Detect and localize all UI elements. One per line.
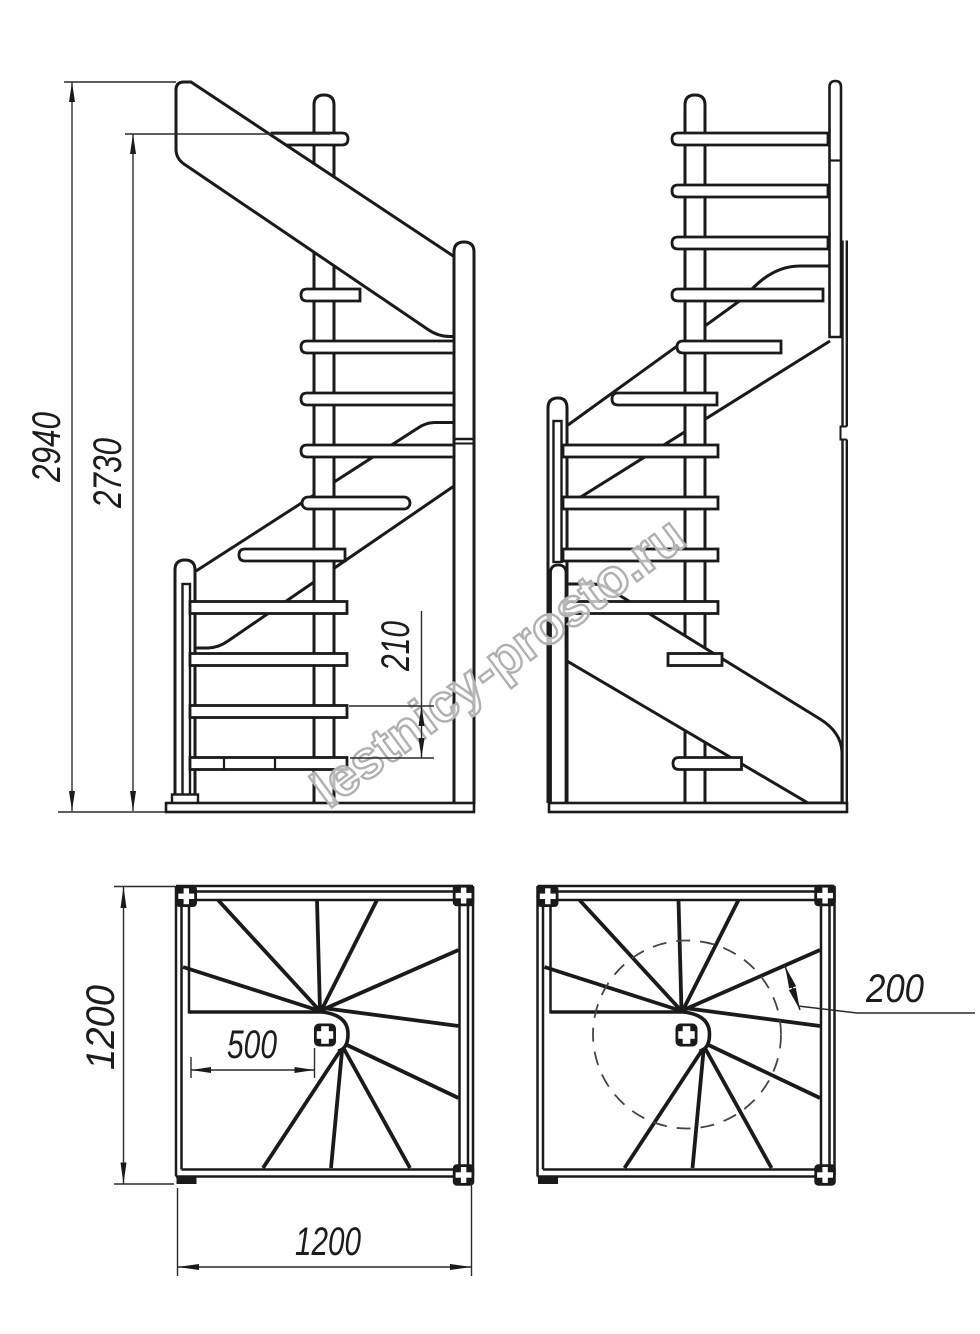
svg-text:2730: 2730 <box>86 438 130 509</box>
svg-text:1200: 1200 <box>295 1220 361 1264</box>
svg-text:2940: 2940 <box>25 412 69 483</box>
svg-text:210: 210 <box>374 621 418 672</box>
svg-text:200: 200 <box>865 967 924 1011</box>
svg-text:500: 500 <box>227 1023 277 1067</box>
svg-text:1200: 1200 <box>79 985 123 1070</box>
